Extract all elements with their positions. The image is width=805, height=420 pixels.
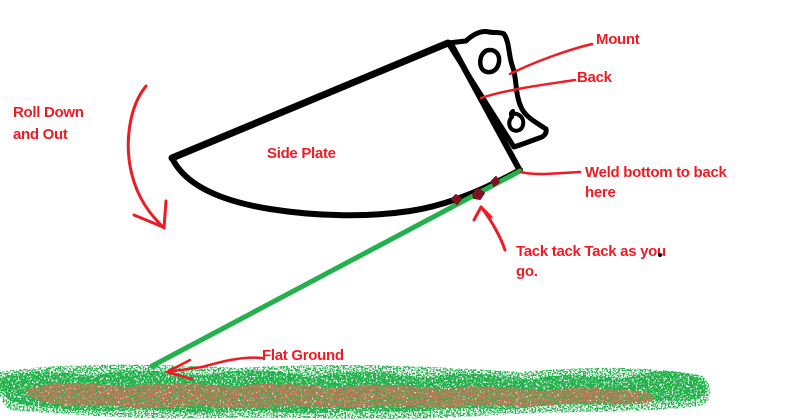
- paint-diagram-canvas: Roll Down and Out Side Plate Mount Back …: [0, 0, 805, 420]
- mount-label: Mount: [596, 30, 639, 50]
- roll-down-and-out-label: Roll Down and Out: [13, 102, 84, 146]
- roll-label-line2: and Out: [13, 124, 84, 146]
- back-label: Back: [577, 68, 612, 88]
- weld-label-line1: Weld bottom to back: [585, 163, 727, 183]
- weld-green-line: [152, 171, 520, 366]
- side-plate-label: Side Plate: [267, 144, 336, 164]
- side-plate-top-edge: [172, 43, 448, 158]
- stray-black-dot: [658, 253, 662, 257]
- weld-bottom-to-back-label: Weld bottom to back here: [585, 163, 727, 203]
- flat-ground-label: Flat Ground: [262, 346, 344, 366]
- tack-arrow-shaft: [481, 207, 505, 250]
- side-plate-bottom-curve: [172, 158, 520, 215]
- drawing-layer: [0, 0, 805, 420]
- weld-pointer-line: [521, 172, 580, 174]
- tack-label-line2: go.: [516, 262, 666, 282]
- roll-label-line1: Roll Down: [13, 102, 84, 124]
- roll-arrow-shaft: [128, 86, 162, 226]
- tack-as-you-go-label: Tack tack Tack as you go.: [516, 242, 666, 282]
- tack-label-line1: Tack tack Tack as you: [516, 242, 666, 262]
- weld-label-line2: here: [585, 183, 727, 203]
